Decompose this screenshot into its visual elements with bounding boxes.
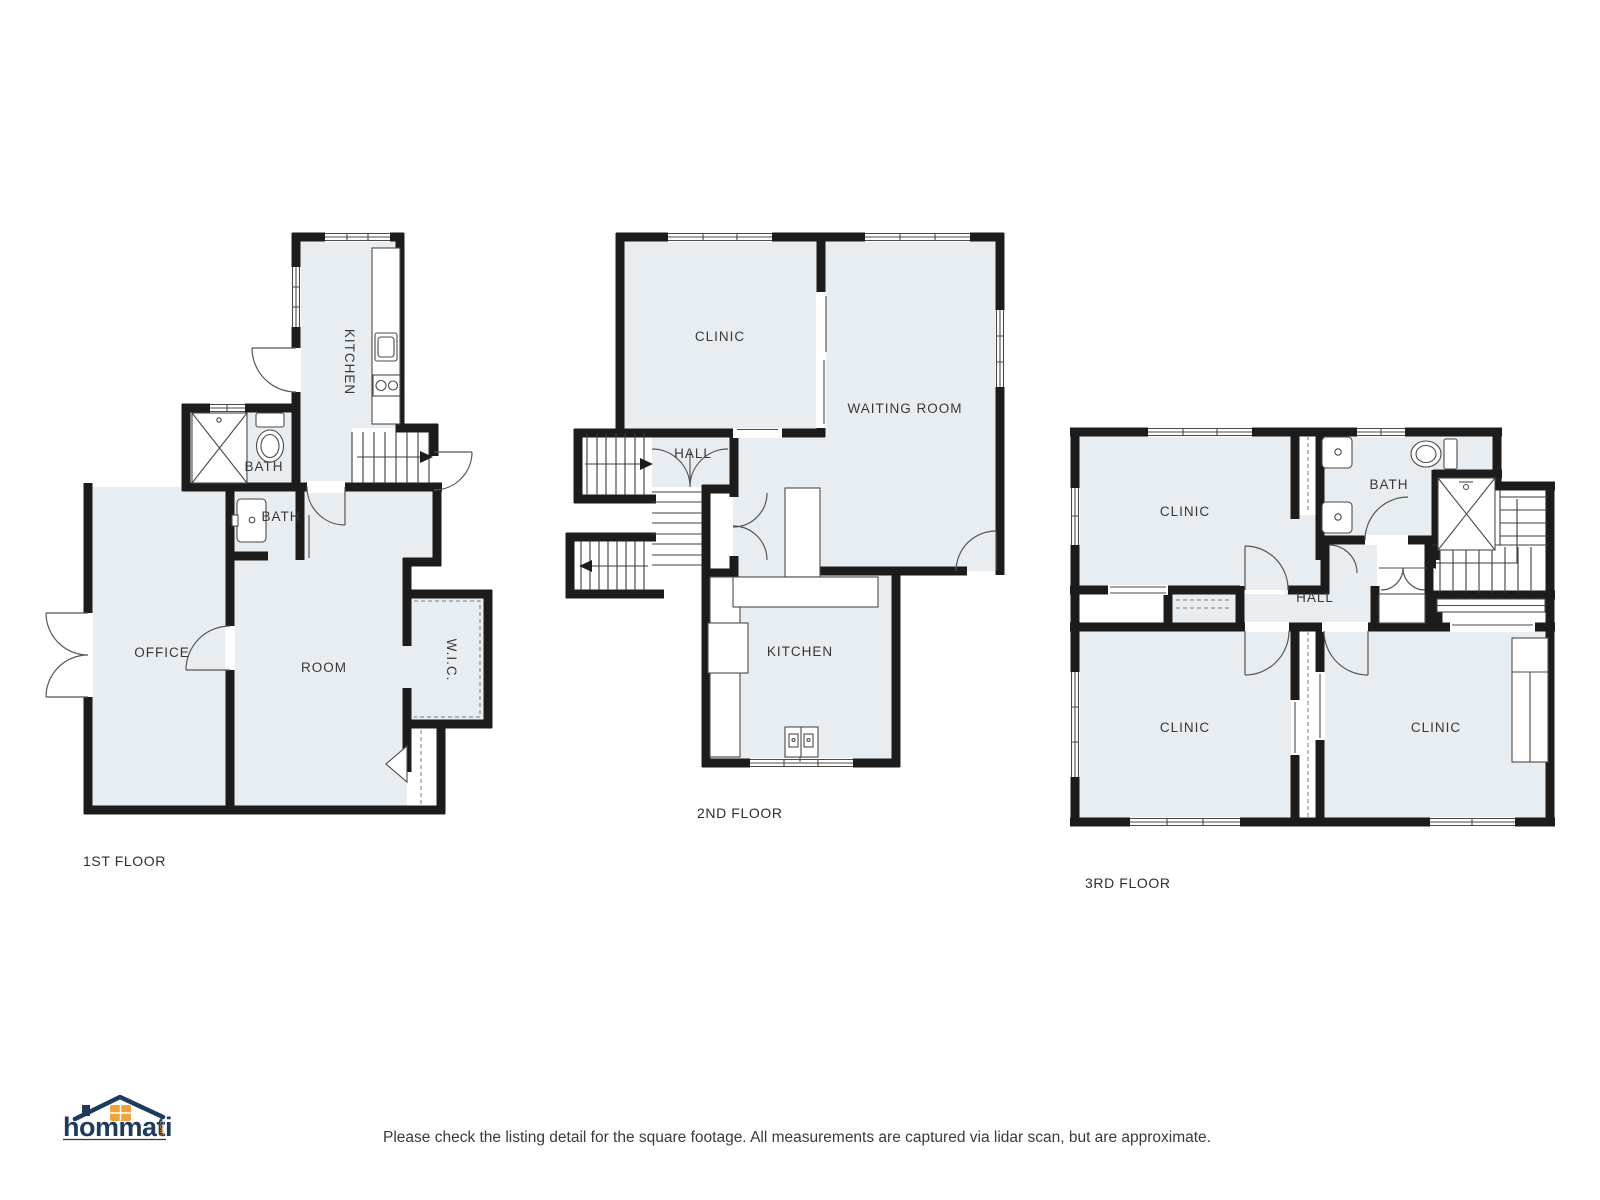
hommati-logo: hommati .com	[63, 1097, 172, 1142]
room-label-clinic-bottom-right: CLINIC	[1411, 720, 1461, 735]
counter	[785, 488, 820, 577]
floor-label-1: 1ST FLOOR	[83, 853, 166, 869]
shower-head	[1464, 485, 1469, 490]
sink	[1322, 437, 1352, 468]
room-label-clinic: CLINIC	[695, 329, 745, 344]
room-label-hall: HALL	[674, 446, 712, 461]
logo-suffix-text: .com	[158, 1118, 167, 1136]
floor-label-2: 2ND FLOOR	[697, 805, 783, 821]
room-label-hall: HALL	[1296, 590, 1334, 605]
room-label-office: OFFICE	[134, 645, 190, 660]
room-label-clinic-top: CLINIC	[1160, 504, 1210, 519]
floor-plan-first-floor: KITCHEN BATH BATH OFFICE ROOM W.I.C. 1ST…	[46, 232, 492, 869]
room-label-wic: W.I.C.	[444, 639, 459, 682]
room-label-bath-upper: BATH	[244, 459, 283, 474]
fridge	[708, 623, 748, 673]
shower-head	[217, 418, 221, 422]
room-label-bath-lower: BATH	[261, 509, 300, 524]
toilet	[1444, 439, 1457, 469]
counter	[733, 577, 878, 607]
closet	[1379, 594, 1425, 623]
room-label-kitchen: KITCHEN	[767, 644, 833, 659]
sink	[1322, 502, 1352, 533]
room-label-clinic-bottom-left: CLINIC	[1160, 720, 1210, 735]
logo-text: hommati	[63, 1112, 172, 1142]
disclaimer-text: Please check the listing detail for the …	[383, 1129, 1211, 1146]
stairs-up-arrow	[640, 458, 653, 470]
floor-plan-third-floor: CLINIC BATH HALL CLINIC CLINIC 3RD FLOOR	[1070, 427, 1555, 891]
room-label-kitchen: KITCHEN	[342, 329, 357, 395]
floor-label-3: 3RD FLOOR	[1085, 875, 1171, 891]
floor-plan-sheet: KITCHEN BATH BATH OFFICE ROOM W.I.C. 1ST…	[0, 0, 1600, 1200]
room-label-room: ROOM	[301, 660, 347, 675]
floor-plan-canvas: KITCHEN BATH BATH OFFICE ROOM W.I.C. 1ST…	[0, 0, 1600, 1200]
toilet	[256, 413, 284, 427]
floor-plan-second-floor: CLINIC WAITING ROOM HALL KITCHEN 2ND FLO…	[566, 232, 1005, 821]
room-label-bath: BATH	[1369, 477, 1408, 492]
room-label-waiting-room: WAITING ROOM	[848, 401, 963, 416]
